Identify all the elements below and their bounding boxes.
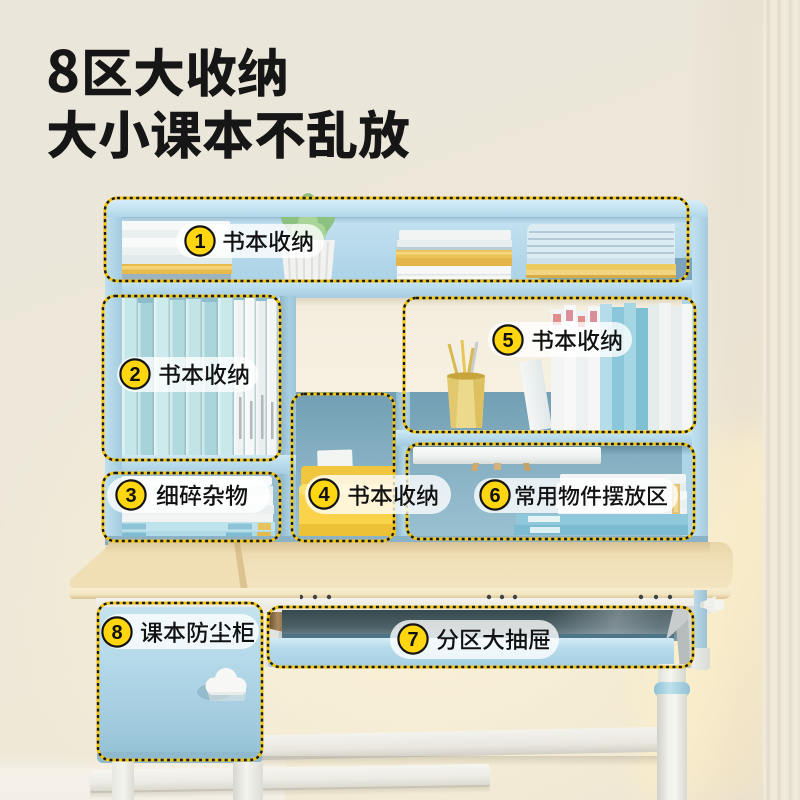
svg-text:8: 8 xyxy=(111,622,122,644)
svg-text:4: 4 xyxy=(318,484,330,506)
svg-text:3: 3 xyxy=(125,485,136,507)
svg-text:2: 2 xyxy=(129,364,140,386)
svg-text:7: 7 xyxy=(407,629,418,651)
svg-text:5: 5 xyxy=(502,330,513,352)
svg-text:6: 6 xyxy=(489,485,500,507)
svg-text:1: 1 xyxy=(194,231,205,253)
